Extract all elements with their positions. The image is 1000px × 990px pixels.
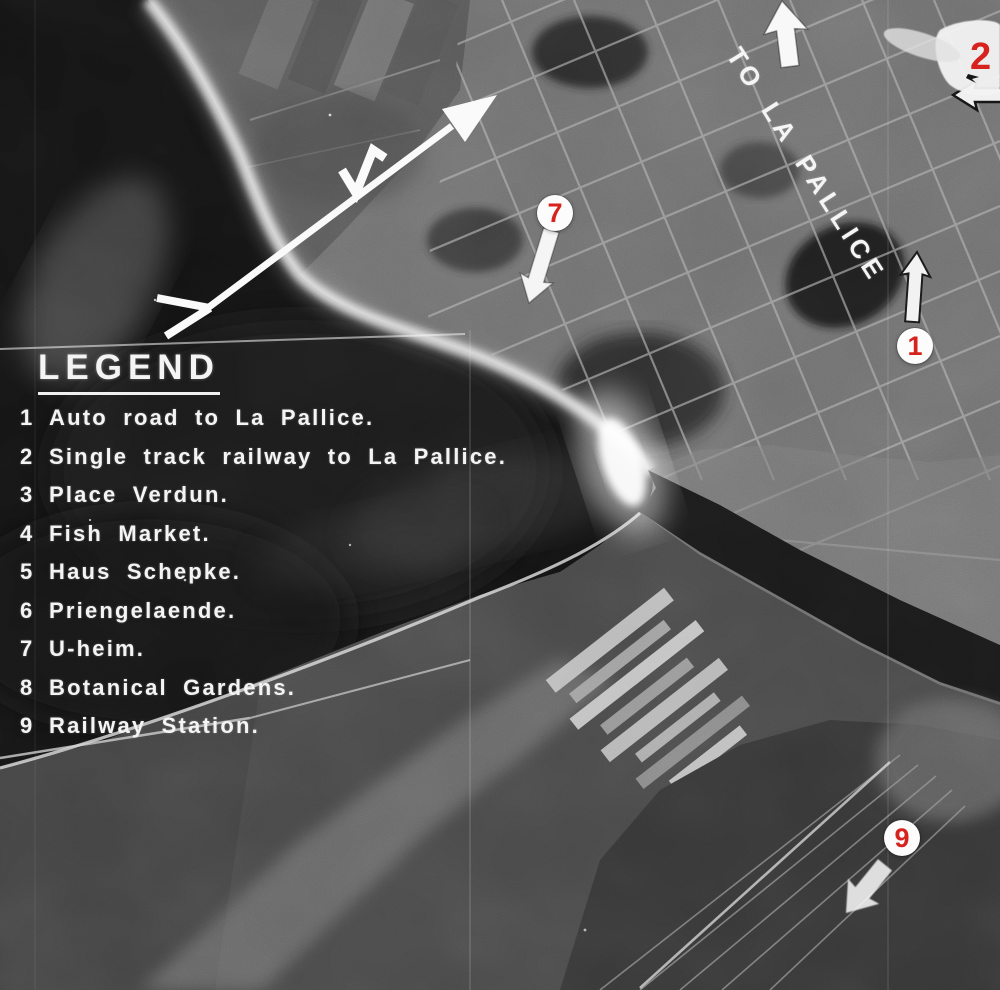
legend-item-label: Haus Schepke. bbox=[49, 559, 241, 585]
legend-item-label: Auto road to La Pallice. bbox=[49, 405, 374, 431]
legend-item: 3 Place Verdun. bbox=[20, 482, 507, 508]
legend-item-label: Botanical Gardens. bbox=[49, 675, 296, 701]
legend-item-number: 1 bbox=[20, 405, 37, 431]
legend-item-label: Railway Station. bbox=[49, 713, 260, 739]
legend-item-label: Fish Market. bbox=[49, 521, 211, 547]
legend-item-label: Single track railway to La Pallice. bbox=[49, 444, 507, 470]
annotated-aerial-photo: TO LA PALLICE LEGEND 1 Auto road to La P… bbox=[0, 0, 1000, 990]
legend-item: 8 Botanical Gardens. bbox=[20, 675, 507, 701]
legend-item-number: 4 bbox=[20, 521, 37, 547]
legend-item: 2 Single track railway to La Pallice. bbox=[20, 444, 507, 470]
legend-item-number: 3 bbox=[20, 482, 37, 508]
legend-item-label: U-heim. bbox=[49, 636, 145, 662]
legend-item: 1 Auto road to La Pallice. bbox=[20, 405, 507, 431]
legend: LEGEND 1 Auto road to La Pallice. 2 Sing… bbox=[20, 348, 507, 752]
legend-item-label: Priengelaende. bbox=[49, 598, 236, 624]
legend-title: LEGEND bbox=[38, 348, 220, 395]
legend-item-number: 9 bbox=[20, 713, 37, 739]
legend-item-label: Place Verdun. bbox=[49, 482, 229, 508]
legend-item-number: 5 bbox=[20, 559, 37, 585]
legend-item: 9 Railway Station. bbox=[20, 713, 507, 739]
marker-9: 9 bbox=[884, 820, 920, 856]
legend-item-number: 2 bbox=[20, 444, 37, 470]
marker-1: 1 bbox=[897, 328, 933, 364]
marker-2: 2 bbox=[970, 38, 991, 76]
legend-item-number: 6 bbox=[20, 598, 37, 624]
legend-item-number: 7 bbox=[20, 636, 37, 662]
marker-7: 7 bbox=[537, 195, 573, 231]
legend-item: 6 Priengelaende. bbox=[20, 598, 507, 624]
legend-item: 7 U-heim. bbox=[20, 636, 507, 662]
legend-item: 5 Haus Schepke. bbox=[20, 559, 507, 585]
legend-item-number: 8 bbox=[20, 675, 37, 701]
legend-item: 4 Fish Market. bbox=[20, 521, 507, 547]
legend-items: 1 Auto road to La Pallice. 2 Single trac… bbox=[20, 405, 507, 739]
